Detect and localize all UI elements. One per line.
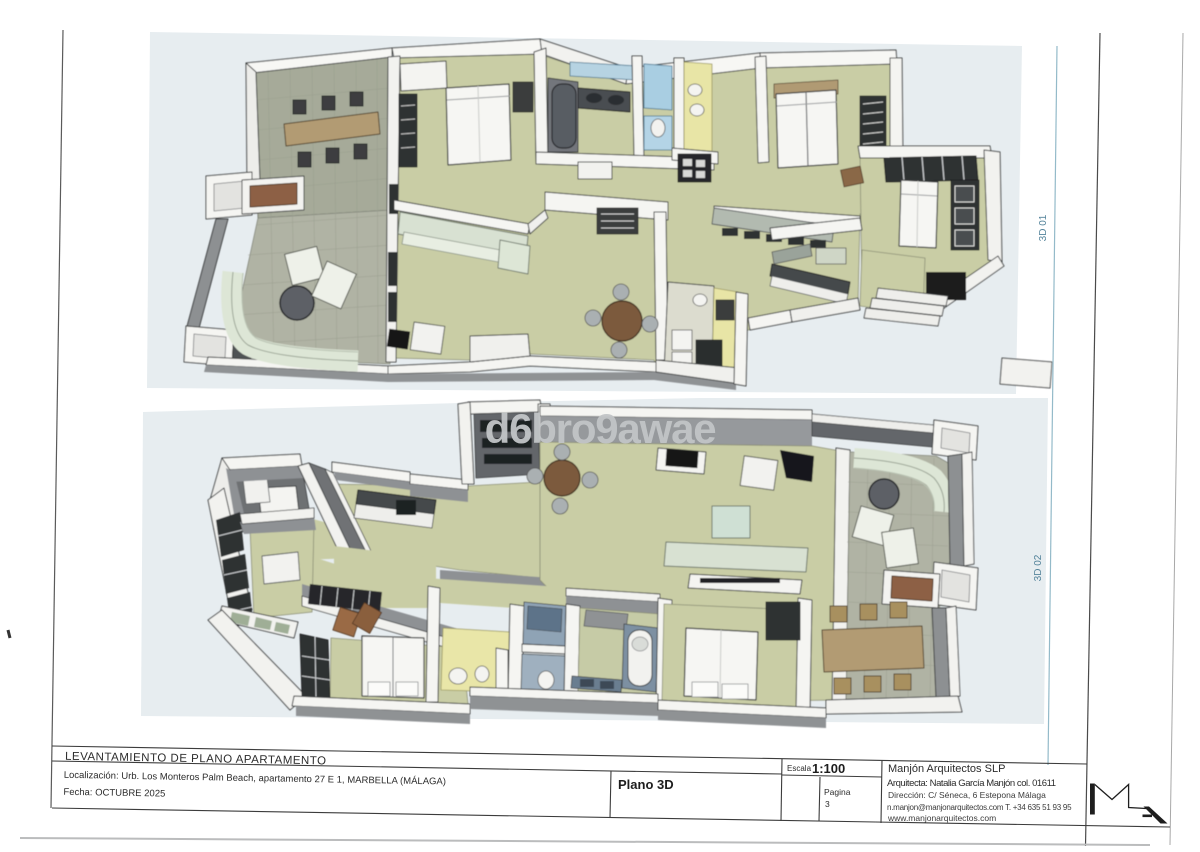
svg-text:3D 02: 3D 02	[1033, 554, 1044, 581]
svg-text:3D 01: 3D 01	[1038, 214, 1049, 241]
svg-text:Dirección: C/ Séneca, 6 Estepo: Dirección: C/ Séneca, 6 Estepona Málaga	[888, 790, 1046, 800]
svg-text:n.manjon@manjonarquitectos.com: n.manjon@manjonarquitectos.com T. +34 63…	[887, 803, 1072, 812]
svg-text:Pagina: Pagina	[824, 787, 851, 797]
svg-text:Manjón Arquitectos SLP: Manjón Arquitectos SLP	[888, 763, 1005, 775]
svg-text:Arquitecta: Natalia García Man: Arquitecta: Natalia García Manjón col. 0…	[887, 778, 1056, 789]
svg-text:3: 3	[825, 799, 830, 809]
svg-text:1:100: 1:100	[812, 761, 845, 776]
svg-text:Fecha: OCTUBRE 2025: Fecha: OCTUBRE 2025	[63, 787, 165, 800]
svg-text:d6bro9awae: d6bro9awae	[485, 405, 716, 452]
svg-text:Escala: Escala	[787, 764, 812, 773]
svg-text:Plano 3D: Plano 3D	[618, 777, 674, 792]
svg-text:www.manjonarquitectos.com: www.manjonarquitectos.com	[887, 813, 996, 823]
